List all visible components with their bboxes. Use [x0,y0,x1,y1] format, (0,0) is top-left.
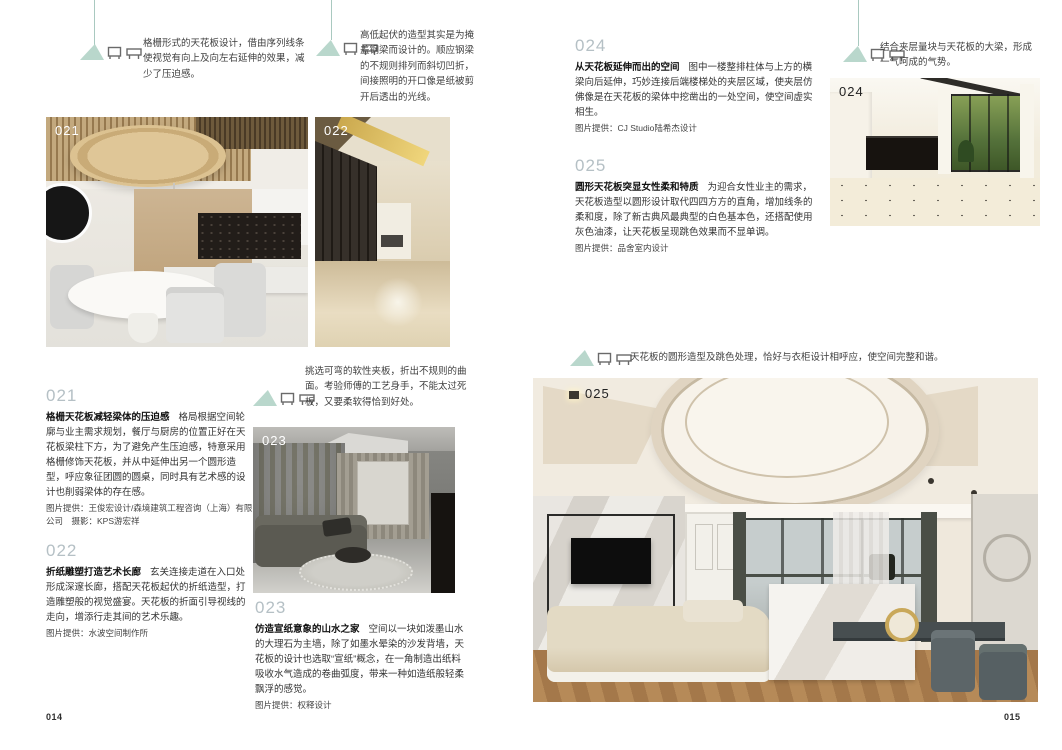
entry-022: 022 折纸雕塑打造艺术长廊玄关连接走道在入口处形成深邃长廊，搭配天花板起伏的折… [46,541,253,640]
entry-text: 圆形天花板突显女性柔和特质为迎合女性业主的需求，天花板造型以圆形设计取代四四方方… [575,180,817,240]
photo-label: 021 [55,123,80,138]
entry-credit: 图片提供：水波空间制作所 [46,627,253,640]
window-shape [357,461,409,525]
circular-grille-ceiling-shape [70,125,226,187]
entry-credit: 图片提供：王俊宏设计/森境建筑工程咨询（上海）有限公司 摄影：KPS游宏祥 [46,502,253,528]
desk-chair-shape [931,630,975,692]
triangle-lamp-icon [253,390,277,406]
entry-text: 折纸雕塑打造艺术长廊玄关连接走道在入口处形成深邃长廊，搭配天花板起伏的折纸造型，… [46,565,253,625]
entry-number: 023 [255,598,467,618]
potted-plant-shape [958,140,974,162]
entry-title: 圆形天花板突显女性柔和特质 [575,182,699,193]
entry-credit: 图片提供：品舍室内设计 [575,242,817,255]
entry-title: 从天花板延伸而出的空间 [575,62,680,73]
table-pedestal-shape [128,313,158,343]
column-shape [1020,84,1034,184]
tv-screen-shape [571,538,651,584]
annotation-leader-line [331,0,332,40]
highlight-marker [570,350,632,366]
photo-025-bedroom: 025 [533,378,1038,702]
coffee-table-shape [335,547,371,563]
pillow-shape [683,600,743,622]
wardrobe-icon [280,392,296,406]
door-panel-shape [695,524,713,570]
wine-rack-shape [198,213,301,259]
entry-title: 仿造宣纸意象的山水之家 [255,624,360,635]
ceiling-spotlight-shape [569,391,579,399]
entry-023: 023 仿造宣纸意象的山水之家空间以一块如泼墨山水的大理石为主墙，除了如墨水晕染… [255,598,467,712]
entry-021: 021 格栅天花板减轻梁体的压迫感格局根据空间轮廓与业主需求规划，餐厅与厨房的位… [46,386,253,528]
photo-label: 022 [324,123,349,138]
entry-number: 022 [46,541,253,561]
left-page-number: 014 [46,712,63,722]
entry-number: 025 [575,156,817,176]
annotation-note: 高低起伏的造型其实是为掩盖钢梁而设计的。顺应钢梁的不规则排列而斜切凹折，间接照明… [360,28,482,105]
annotation-leader-line [858,0,859,46]
triangle-lamp-icon [843,46,867,62]
photo-label: 024 [839,84,864,99]
tv-cabinet-shape [431,493,455,593]
triangle-lamp-icon [316,40,340,56]
wardrobe-circle-motif-shape [983,534,1031,582]
photo-023-living-room: 023 [253,427,455,593]
triangle-lamp-icon [570,350,594,366]
corridor-end-shape [377,203,411,259]
entry-credit: 图片提供：权释设计 [255,699,467,712]
right-page-number: 015 [1004,712,1021,722]
entry-text: 从天花板延伸而出的空间图中一楼整排柱体与上方的横梁向后延伸，巧妙连接后端楼梯处的… [575,60,817,120]
gold-mirror-shape [885,608,919,642]
entry-body: 格局根据空间轮廓与业主需求规划，餐厅与厨房的位置正好在天花板梁柱下方，为了避免产… [46,412,246,498]
photo-label: 023 [262,433,287,448]
annotation-note: 天花板的圆形造型及跳色处理，恰好与衣柜设计相呼应，使空间完整和谐。 [630,350,1040,365]
entry-text: 格栅天花板减轻梁体的压迫感格局根据空间轮廓与业主需求规划，餐厅与厨房的位置正好在… [46,410,253,500]
photo-022-corridor: 022 [315,117,450,347]
entry-title: 折纸雕塑打造艺术长廊 [46,567,141,578]
marble-floor-shape [830,178,1040,226]
spotlight-shape [928,478,934,484]
entry-025: 025 圆形天花板突显女性柔和特质为迎合女性业主的需求，天花板造型以圆形设计取代… [575,156,817,255]
annotation-leader-line [94,0,95,46]
highlight-marker [80,44,142,60]
annotation-note: 结合夹层量块与天花板的大梁，形成一气呵成的气势。 [880,40,1040,71]
entry-credit: 图片提供：CJ Studio陆希杰设计 [575,122,817,135]
entry-024: 024 从天花板延伸而出的空间图中一楼整排柱体与上方的横梁向后延伸，巧妙连接后端… [575,36,817,135]
entry-number: 021 [46,386,253,406]
floor-reflection-shape [373,277,423,327]
photo-024-lobby: 024 [830,78,1040,226]
wardrobe-icon [107,46,123,60]
wardrobe-icon [597,352,613,366]
chair-shape [166,287,224,343]
triangle-lamp-icon [80,44,104,60]
photo-021-dining-room: 021 [46,117,308,347]
desk-shape [833,622,1005,638]
column-shape [938,88,951,174]
desk-chair-shape [979,644,1027,700]
table-icon [126,46,142,60]
black-counter-shape [866,136,948,170]
entry-title: 格栅天花板减轻梁体的压迫感 [46,412,170,423]
book-spread: 格栅形式的天花板设计，借由序列线条使视觉有向上及向左右延伸的效果，减少了压迫感。… [0,0,1062,750]
photo-label: 025 [585,386,610,401]
entry-number: 024 [575,36,817,56]
far-furniture-shape [381,235,403,247]
annotation-note: 挑选可弯的软性夹板，折出不规则的曲面。考验师傅的工艺身手，不能太过死板，又要柔软… [305,364,470,410]
annotation-note: 格栅形式的天花板设计，借由序列线条使视觉有向上及向左右延伸的效果，减少了压迫感。 [143,36,313,82]
entry-text: 仿造宣纸意象的山水之家空间以一块如泼墨山水的大理石为主墙，除了如墨水晕染的沙发背… [255,622,467,697]
wardrobe-icon [343,42,359,56]
round-artwork-shape [46,183,92,243]
